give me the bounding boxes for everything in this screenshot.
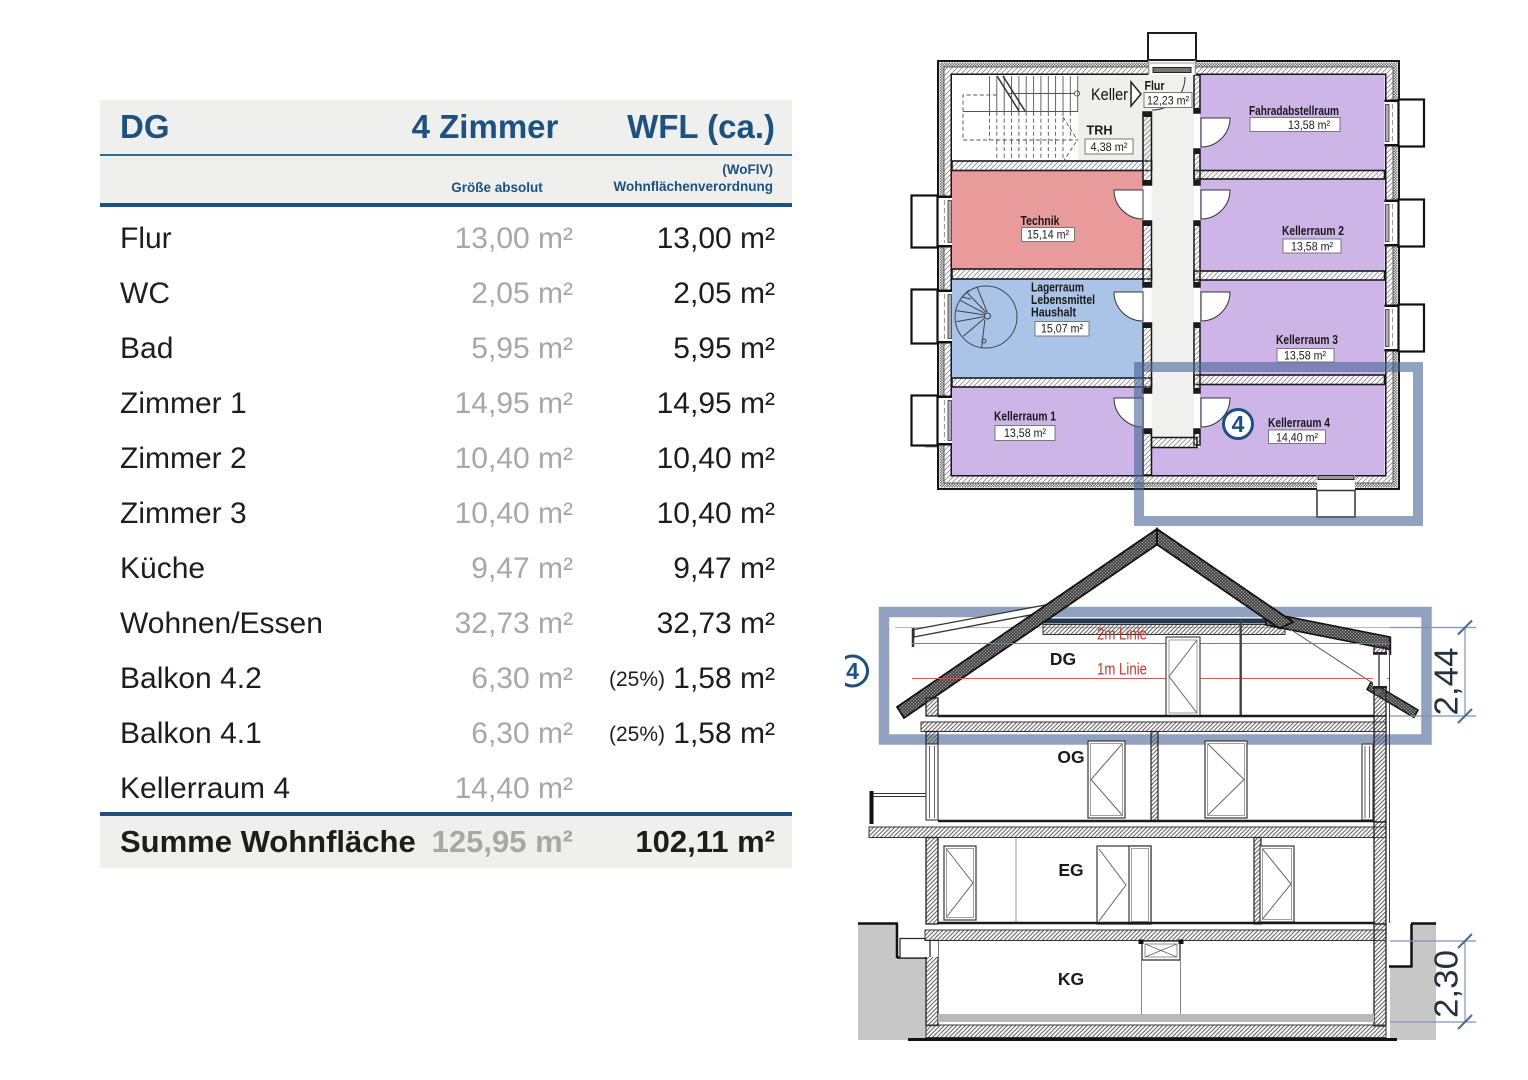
svg-text:4: 4 [1232, 411, 1245, 437]
svg-text:13,58 m²: 13,58 m² [1284, 349, 1326, 363]
svg-text:12,23 m²: 12,23 m² [1147, 94, 1189, 108]
svg-text:Fahradabstellraum: Fahradabstellraum [1249, 104, 1339, 118]
svg-text:13,58 m²: 13,58 m² [1288, 118, 1330, 132]
svg-text:OG: OG [1057, 747, 1084, 767]
svg-text:KG: KG [1058, 969, 1084, 989]
svg-text:Kellerraum 1: Kellerraum 1 [994, 410, 1056, 424]
svg-text:Kellerraum 4: Kellerraum 4 [1268, 416, 1330, 430]
svg-text:2m Linie: 2m Linie [1097, 626, 1147, 644]
svg-text:13,58 m²: 13,58 m² [1291, 240, 1333, 254]
svg-text:13,58 m²: 13,58 m² [1004, 426, 1046, 440]
svg-text:4: 4 [846, 658, 859, 684]
svg-text:Technik: Technik [1021, 214, 1060, 228]
svg-text:4,38 m²: 4,38 m² [1091, 140, 1128, 154]
svg-text:2,30: 2,30 [1428, 950, 1465, 1018]
svg-text:14,40 m²: 14,40 m² [1276, 431, 1318, 445]
svg-text:TRH: TRH [1087, 124, 1113, 138]
svg-text:15,14 m²: 15,14 m² [1027, 228, 1069, 242]
svg-text:EG: EG [1058, 860, 1083, 880]
svg-text:Kellerraum 3: Kellerraum 3 [1276, 333, 1338, 347]
svg-text:Haushalt: Haushalt [1031, 306, 1077, 320]
svg-text:Kellerraum 2: Kellerraum 2 [1282, 224, 1344, 238]
svg-text:15,07 m²: 15,07 m² [1041, 322, 1083, 336]
svg-text:1m Linie: 1m Linie [1097, 661, 1147, 679]
svg-text:DG: DG [1050, 649, 1076, 669]
svg-text:Keller: Keller [1091, 85, 1128, 104]
svg-text:Flur: Flur [1145, 79, 1165, 93]
svg-text:2,44: 2,44 [1428, 648, 1465, 716]
